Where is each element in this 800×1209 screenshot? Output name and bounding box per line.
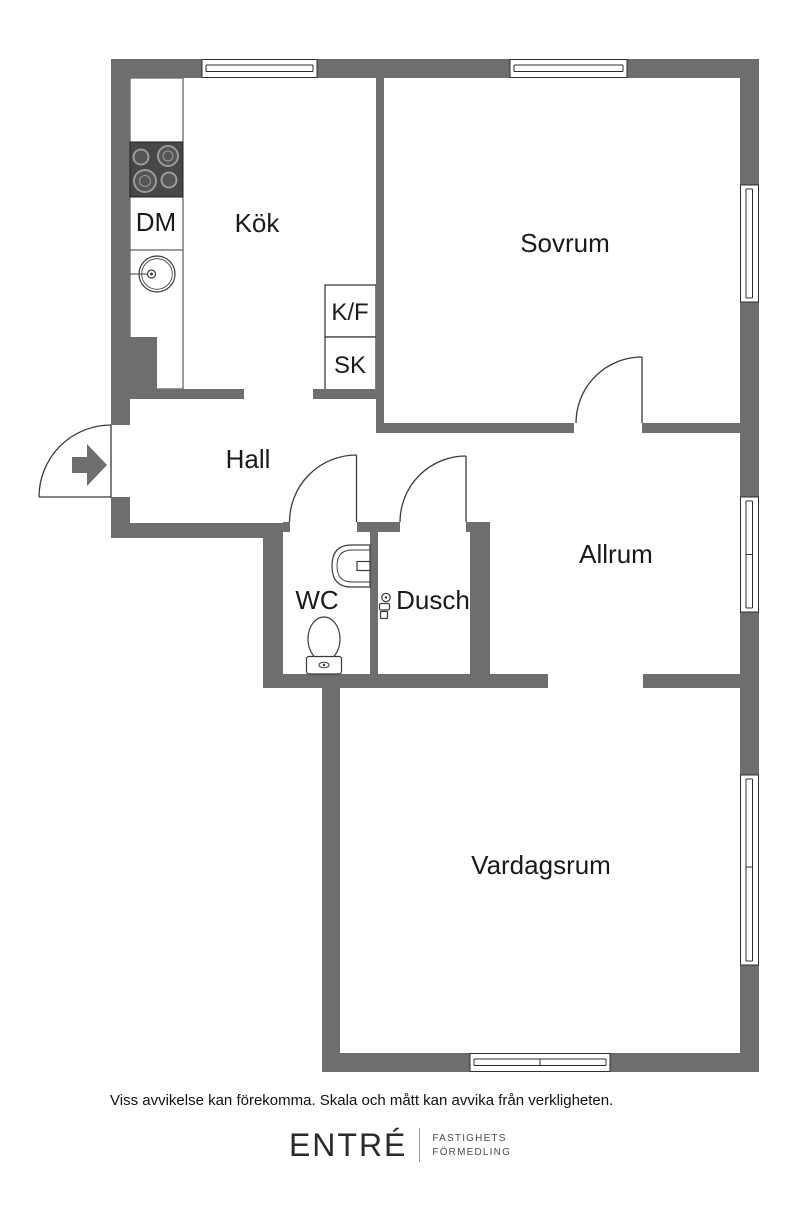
window-right-vardagsrum bbox=[741, 775, 759, 965]
wc-door-swing bbox=[290, 455, 357, 522]
floorplan-svg: Kök Sovrum Hall WC Dusch Allrum Vardagsr… bbox=[0, 0, 800, 1080]
stove-icon bbox=[130, 142, 183, 197]
floorplan: Kök Sovrum Hall WC Dusch Allrum Vardagsr… bbox=[0, 0, 800, 1080]
room-labels: Kök Sovrum Hall WC Dusch Allrum Vardagsr… bbox=[136, 207, 653, 880]
washbasin-icon bbox=[332, 545, 370, 587]
room-label-sovrum: Sovrum bbox=[520, 228, 610, 258]
brand-subtitle-line1: FASTIGHETS bbox=[432, 1133, 511, 1144]
window-bottom-vardagsrum bbox=[470, 1054, 610, 1072]
window-right-sovrum bbox=[741, 185, 759, 302]
room-label-vardagsrum: Vardagsrum bbox=[471, 850, 611, 880]
brand-subtitle-line2: FÖRMEDLING bbox=[432, 1147, 511, 1158]
walls bbox=[111, 59, 759, 1072]
room-label-kok: Kök bbox=[235, 208, 281, 238]
brand-name: ENTRÉ bbox=[289, 1129, 407, 1161]
brand-divider bbox=[419, 1128, 420, 1162]
label-fridge-freezer: K/F bbox=[331, 299, 368, 326]
room-label-wc: WC bbox=[295, 585, 338, 615]
room-label-allrum: Allrum bbox=[579, 539, 653, 569]
shower-mixer-icon bbox=[380, 593, 391, 618]
sovrum-door-swing bbox=[576, 357, 642, 423]
window-top-sovrum bbox=[510, 60, 627, 78]
disclaimer-text: Viss avvikelse kan förekomma. Skala och … bbox=[110, 1092, 613, 1109]
brand-subtitle: FASTIGHETS FÖRMEDLING bbox=[432, 1133, 511, 1158]
label-closet: SK bbox=[334, 352, 366, 379]
room-label-hall: Hall bbox=[226, 444, 271, 474]
entry-arrow-icon bbox=[72, 444, 107, 486]
floorplan-page: { "plan": { "rooms": { "kok": {"label": … bbox=[0, 0, 800, 1209]
window-right-allrum bbox=[741, 497, 759, 612]
room-label-dusch: Dusch bbox=[396, 585, 470, 615]
brand-logo: ENTRÉ FASTIGHETS FÖRMEDLING bbox=[0, 1128, 800, 1162]
label-dishwasher: DM bbox=[136, 207, 176, 237]
window-top-kitchen bbox=[202, 60, 317, 78]
dusch-door-swing bbox=[400, 456, 466, 522]
toilet-icon bbox=[307, 617, 342, 674]
